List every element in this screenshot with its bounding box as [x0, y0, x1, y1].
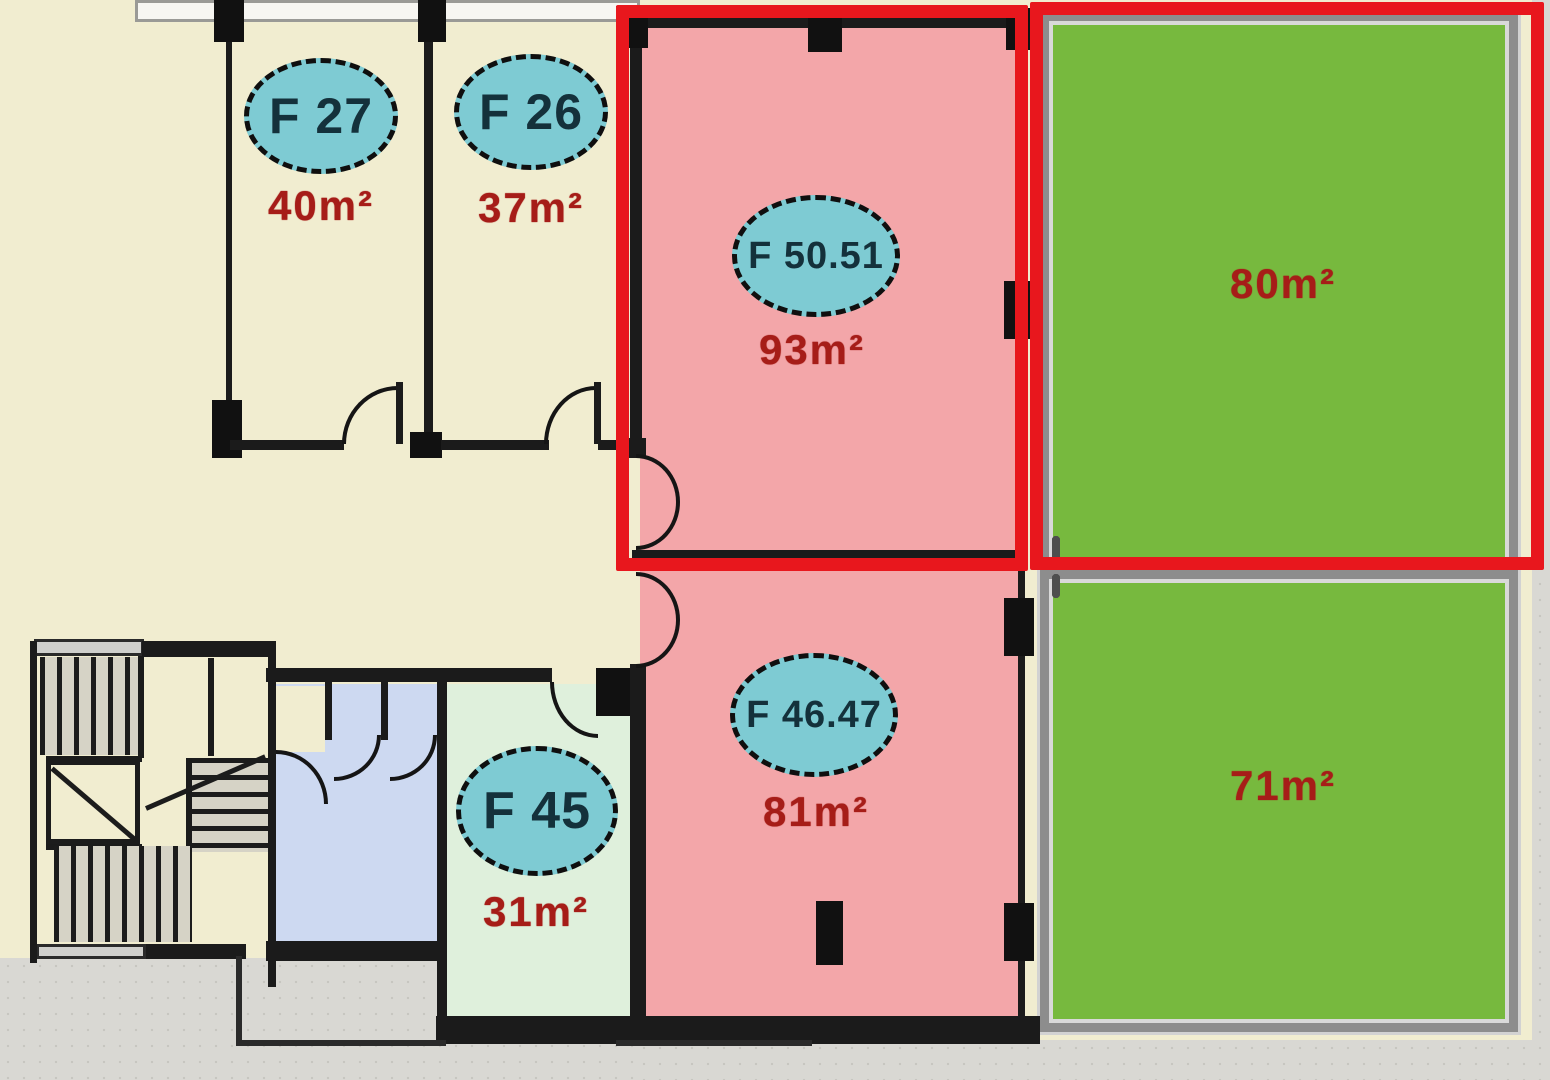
door-arc — [342, 386, 398, 444]
area-label-f4647: 81m² — [706, 788, 926, 836]
window-segment — [1052, 574, 1060, 598]
pillar — [418, 0, 446, 42]
wall — [437, 668, 447, 1018]
wall — [142, 641, 274, 657]
window-band — [1052, 574, 1506, 598]
wall — [325, 682, 332, 740]
wall — [441, 440, 549, 450]
wall — [230, 440, 344, 450]
unit-badge-f26[interactable]: F 26 — [454, 54, 608, 170]
pillar — [410, 432, 442, 458]
door-arc — [544, 386, 596, 444]
unit-badge-f27[interactable]: F 27 — [244, 58, 398, 174]
stair-treads — [40, 657, 138, 755]
area-label-green71: 71m² — [1173, 760, 1393, 812]
pillar — [1004, 598, 1034, 656]
wc-entry-nook — [276, 686, 325, 752]
pillar — [214, 0, 244, 42]
unit-badge-label: F 45 — [483, 781, 591, 841]
exterior-wall-line — [236, 1040, 446, 1046]
selection-rectangle-green-unit — [1030, 2, 1544, 570]
selection-rectangle-pink-unit — [616, 5, 1028, 571]
exterior-window-band — [135, 0, 640, 22]
unit-badge-label: F 46.47 — [746, 694, 882, 737]
unit-badge-label: F 27 — [269, 87, 373, 145]
wall — [208, 658, 214, 756]
pillar — [596, 668, 630, 716]
unit-badge-label: F 26 — [479, 83, 583, 141]
exterior-wall-line — [236, 956, 242, 1046]
wall — [30, 641, 37, 963]
wall — [146, 944, 246, 959]
area-label-f26: 37m² — [421, 184, 641, 232]
wall — [630, 664, 646, 1018]
column — [816, 901, 843, 965]
stair-landing-top — [34, 639, 144, 656]
wall — [138, 656, 144, 758]
door-leaf — [396, 382, 403, 444]
exterior-wall-line — [616, 1040, 812, 1046]
wall — [381, 682, 388, 740]
door-leaf — [594, 382, 601, 444]
wall — [186, 758, 192, 852]
area-label-f45: 31m² — [426, 888, 646, 936]
stair-treads — [54, 846, 192, 942]
floor-plan: F 27 F 26 F 50.51 F 45 F 46.47 40m² 37m²… — [0, 0, 1550, 1080]
wall — [266, 668, 552, 682]
wall — [268, 641, 276, 987]
wall — [266, 941, 446, 961]
exterior-ground — [636, 1040, 1550, 1080]
unit-badge-f45[interactable]: F 45 — [456, 746, 618, 876]
unit-badge-f4647[interactable]: F 46.47 — [730, 653, 898, 777]
wall — [424, 22, 433, 442]
stair-landing-bottom — [36, 944, 146, 959]
pillar — [1004, 903, 1034, 961]
area-label-f27: 40m² — [211, 182, 431, 230]
